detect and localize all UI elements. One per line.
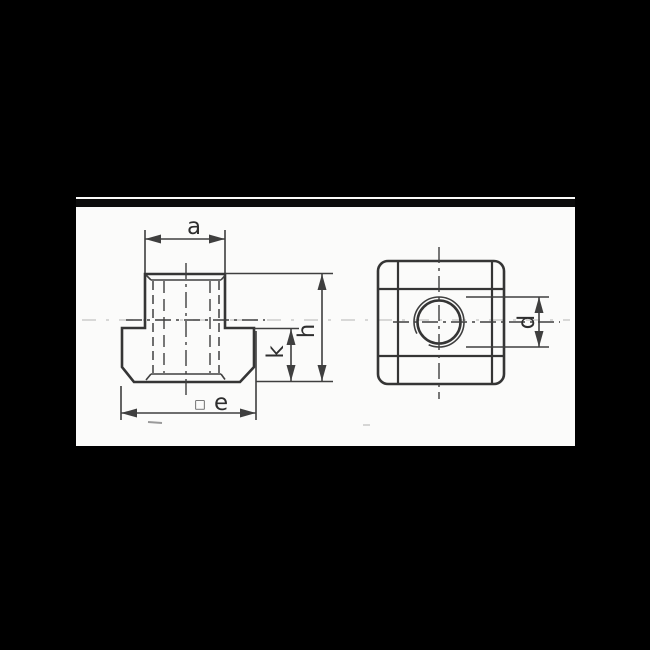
- paper-panel: [76, 197, 575, 446]
- label-h: h: [294, 324, 320, 339]
- screenshot-canvas: a □ e k h: [0, 0, 650, 650]
- top-rule: [76, 199, 575, 207]
- technical-drawing: a □ e k h: [0, 0, 650, 650]
- label-k: k: [263, 345, 289, 359]
- label-a: a: [187, 214, 201, 240]
- scan-artifact-dash: [148, 422, 162, 423]
- label-e-prefix: □: [194, 397, 205, 411]
- label-e: e: [214, 390, 228, 416]
- label-d: d: [514, 315, 540, 330]
